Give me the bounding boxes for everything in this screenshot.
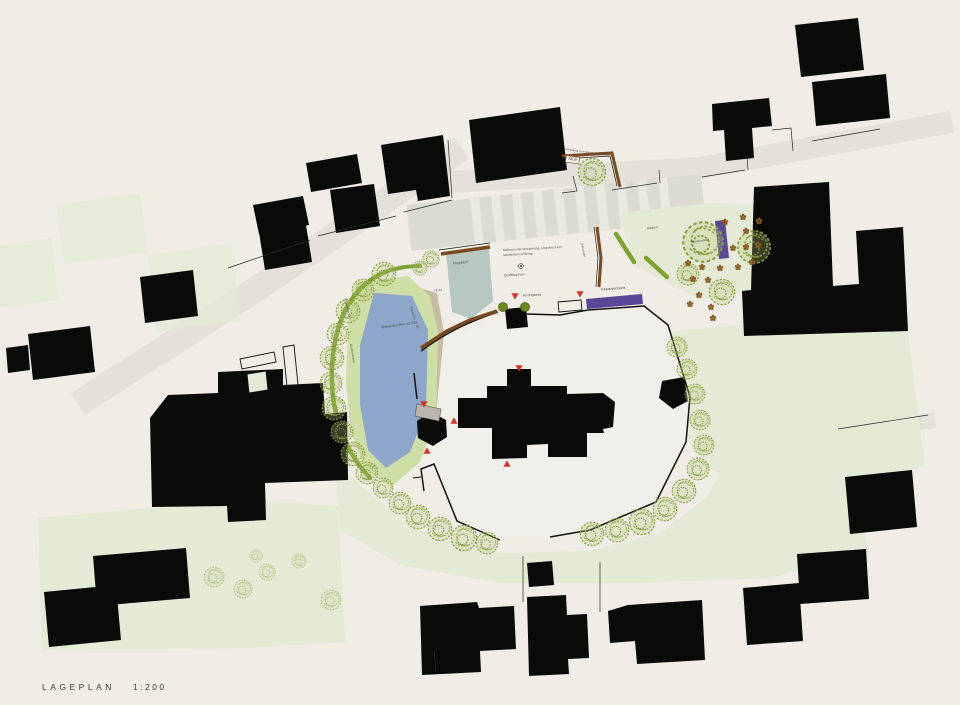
building bbox=[527, 595, 589, 676]
building bbox=[812, 74, 890, 126]
plan-title-text: LAGEPLAN bbox=[42, 682, 115, 692]
site-plan-canvas bbox=[0, 0, 960, 705]
lawn-patch-2 bbox=[0, 238, 58, 308]
plan-title: LAGEPLAN1:200 bbox=[42, 682, 167, 692]
plan-scale: 1:200 bbox=[133, 682, 167, 692]
building bbox=[527, 561, 554, 587]
building bbox=[140, 270, 198, 323]
building bbox=[797, 549, 869, 604]
building bbox=[258, 219, 312, 270]
building bbox=[330, 184, 380, 233]
garden-square bbox=[247, 371, 268, 393]
building bbox=[44, 585, 121, 647]
building bbox=[608, 600, 705, 664]
building bbox=[306, 154, 362, 192]
fountain-icon bbox=[519, 264, 524, 269]
site-plan: Flugdach Maibaum mit Umzäunung, eingefas… bbox=[0, 0, 960, 705]
building bbox=[742, 182, 908, 336]
outbuilding-outline bbox=[240, 352, 276, 369]
outbuilding-outline bbox=[283, 345, 298, 387]
building bbox=[6, 345, 30, 373]
building bbox=[469, 107, 567, 183]
building bbox=[420, 602, 516, 675]
building bbox=[795, 18, 864, 77]
building bbox=[743, 583, 803, 645]
building bbox=[28, 326, 95, 380]
lawn-patch-1 bbox=[56, 193, 148, 264]
shed-outline bbox=[558, 300, 582, 312]
building bbox=[845, 470, 917, 534]
water-basin bbox=[439, 243, 493, 319]
